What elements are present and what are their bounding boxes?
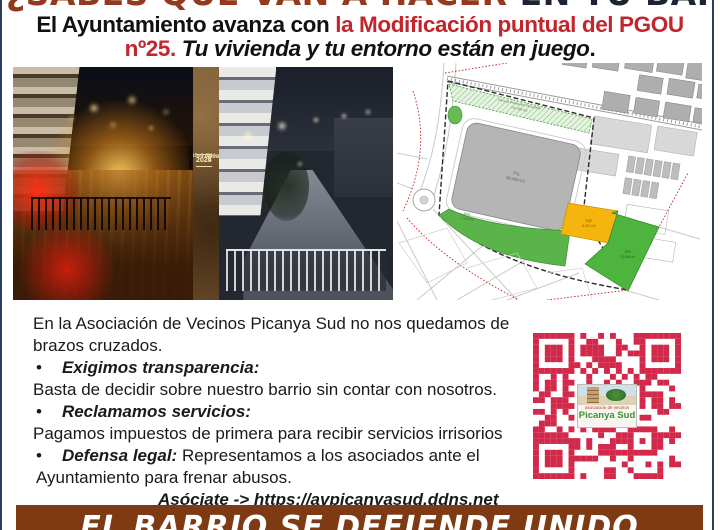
night-photo-dark-buildings — [334, 118, 393, 197]
qr-code: asociación de vecinos Picanya Sud — [533, 333, 681, 479]
logo-tree-icon — [606, 389, 626, 402]
clean-night-photo — [219, 67, 393, 300]
map-small-green-parcel — [448, 106, 462, 124]
banner-slogan: EL BARRIO SE DEFIENDE UNIDO — [16, 510, 703, 530]
bullet-servicios-text: Pagamos impuestos de primera para recibi… — [30, 423, 538, 445]
flood-photo-fence — [31, 197, 171, 229]
map-zone-eqe — [561, 203, 618, 243]
association-text: En la Asociación de Vecinos Picanya Sud … — [30, 313, 538, 511]
association-logo-image — [578, 385, 636, 405]
zone-eqe-label: EQE — [586, 219, 593, 223]
subheadline-period: . — [590, 36, 596, 61]
logo-building-icon — [587, 387, 599, 403]
bullet-transparencia: Exigimos transparencia: — [30, 357, 538, 379]
bullet-defensa-title: Defensa legal: — [62, 446, 177, 465]
bottom-banner: EL BARRIO SE DEFIENDE UNIDO — [16, 505, 703, 530]
night-photo-tree — [264, 151, 309, 221]
pgou-plan-map: Zona de Protección Ferroviaria ≈10.445 m… — [397, 63, 702, 300]
zone-eqe-area: 5.247 m2 — [582, 224, 596, 228]
zone-evp-area: 10.818 m2 — [620, 255, 635, 259]
map-roundabout — [413, 189, 435, 211]
intro-line: En la Asociación de Vecinos Picanya Sud … — [30, 313, 538, 357]
subheadline-prefix: El Ayuntamiento avanza con — [36, 12, 335, 37]
qr-center-logo: asociación de vecinos Picanya Sud — [577, 384, 637, 428]
subheadline-emphasis: Tu vivienda y tu entorno están en juego — [176, 36, 590, 61]
night-photo-fence — [226, 249, 386, 291]
bullet-transparencia-title: Exigimos transparencia: — [62, 358, 259, 377]
flyer-page: ¿SABES QUÉ VAN A HACER EN TU BARRIO? El … — [0, 0, 720, 530]
right-border — [712, 0, 714, 530]
flood-photo-streetlights — [13, 67, 15, 69]
night-photo-streetlights — [219, 67, 221, 69]
logo-name-text: Picanya Sud — [579, 410, 636, 421]
bullet-servicios-title: Reclamamos servicios: — [62, 402, 251, 421]
photo-comparison: Picanya 2024 2025 La lluita d'un poble — [13, 67, 393, 300]
bullet-transparencia-text: Basta de decidir sobre nuestro barrio si… — [30, 379, 538, 401]
subheadline: El Ayuntamiento avanza con la Modificaci… — [10, 13, 710, 62]
bullet-defensa: Defensa legal: Representamos a los asoci… — [30, 445, 538, 489]
photo-divider-strip: Picanya 2024 2025 La lluita d'un poble — [193, 67, 219, 300]
plan-map-drawing: Zona de Protección Ferroviaria ≈10.445 m… — [397, 63, 702, 300]
zone-evp-label: EVP — [625, 250, 631, 254]
caption-slogan-2: d'un poble — [193, 153, 218, 160]
headline-text: ¿SABES QUÉ VAN A HACER EN TU BARRIO? — [6, 0, 712, 11]
flood-photo-red-reflection — [13, 225, 121, 300]
left-border — [0, 0, 2, 530]
bullet-servicios: Reclamamos servicios: — [30, 401, 538, 423]
flood-night-photo — [13, 67, 193, 300]
